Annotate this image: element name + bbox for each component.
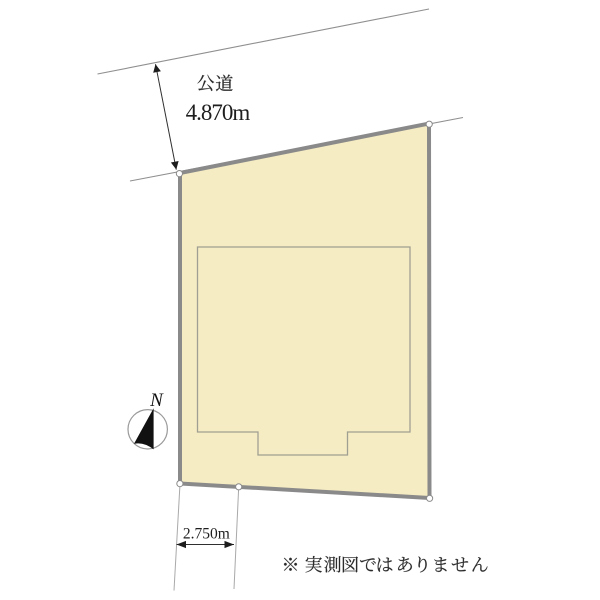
svg-text:2.750m: 2.750m	[183, 526, 230, 543]
svg-text:N: N	[149, 390, 164, 411]
svg-text:4.870m: 4.870m	[186, 100, 251, 125]
